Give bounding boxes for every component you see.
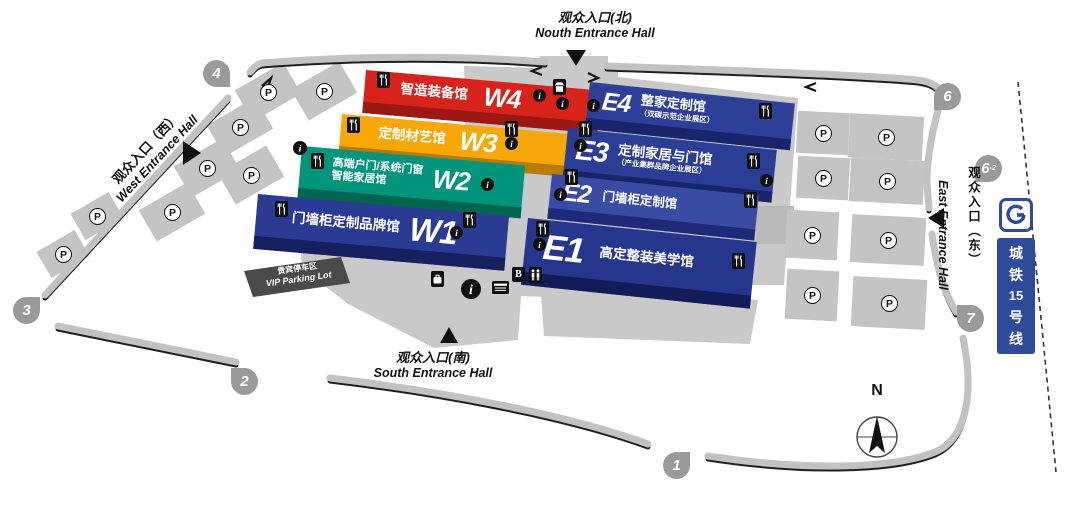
restaurant-icon: [565, 169, 578, 185]
kiosk-icon: [553, 79, 566, 95]
gate-7-label: 7: [966, 310, 974, 327]
info-icon: i: [556, 97, 569, 110]
south-entrance-en: South Entrance Hall: [338, 366, 528, 382]
restaurant-icon: [275, 201, 288, 217]
parking-badge: P: [815, 125, 832, 142]
info-icon: i: [533, 89, 546, 102]
info-icon: i: [461, 279, 481, 299]
gate-7-marker: 7: [957, 305, 984, 332]
parking-badge: P: [260, 84, 277, 101]
restaurant-icon: [759, 103, 772, 119]
north-entrance-en: Nouth Entrance Hall: [500, 26, 690, 42]
restaurant-icon: [536, 221, 549, 237]
hall-w4-name: 智造装备馆: [400, 81, 469, 102]
info-icon: i: [481, 178, 494, 191]
gate-1-marker: 1: [663, 452, 690, 479]
metro-logo: [999, 198, 1033, 232]
gate-3-marker: 3: [13, 297, 40, 324]
gate-6-2-sup: -2: [990, 165, 996, 172]
parking-badge: P: [164, 204, 181, 221]
hall-w2-letter: W2: [432, 166, 471, 195]
parking-badge: P: [881, 295, 898, 312]
gate-6-label: 6: [943, 88, 951, 105]
parking-badge: P: [55, 246, 72, 263]
parking-badge: P: [878, 129, 895, 146]
info-icon: i: [505, 137, 518, 150]
gate-2-label: 2: [240, 373, 248, 390]
parking-badge: P: [232, 119, 249, 136]
restaurant-icon: [579, 121, 592, 137]
north-entrance-zh: 观众入口(北): [500, 10, 690, 26]
parking-badge: P: [804, 227, 821, 244]
parking-badge: P: [199, 160, 216, 177]
hall-e2-name: 门墙柜定制馆: [602, 189, 678, 211]
info-icon: i: [450, 226, 463, 239]
info-icon: i: [554, 188, 567, 201]
compass-icon: [857, 416, 897, 457]
restaurant-icon: [505, 121, 518, 137]
metro-banner-char: 铁: [1009, 268, 1023, 282]
parking-badge: P: [880, 232, 897, 249]
east-entrance-zh: 观众入口（东）: [964, 166, 983, 268]
parking-badge: P: [879, 173, 896, 190]
info-icon: i: [533, 238, 546, 251]
restaurant-icon: [311, 153, 324, 169]
compass-north-label: N: [866, 382, 888, 400]
exhibition-map: 智造装备馆 W4 定制材艺馆 W3 高端户门/系统门窗 智能家居馆 W2 门墙柜…: [0, 0, 1080, 516]
hall-w4-letter: W4: [483, 83, 522, 112]
restroom-icon: [529, 267, 542, 283]
restaurant-icon: [732, 253, 745, 269]
hall-w3-name: 定制材艺馆: [378, 126, 447, 147]
south-entrance-zh: 观众入口(南): [338, 350, 528, 366]
metro-banner-char: 线: [1009, 332, 1023, 346]
restaurant-icon: [463, 212, 476, 228]
east-entrance-en: East Entrance Hall: [936, 180, 950, 290]
parking-badge: P: [815, 170, 832, 187]
gate-1-label: 1: [672, 457, 680, 474]
parking-badge: P: [804, 287, 821, 304]
metro-line-banner: 城 铁 15 号 线: [997, 238, 1035, 354]
svg-text:i: i: [469, 283, 473, 298]
gate-6-marker: 6: [934, 83, 961, 110]
gate-3-label: 3: [22, 302, 30, 319]
hall-w3-letter: W3: [459, 127, 498, 156]
north-entrance-label: 观众入口(北) Nouth Entrance Hall: [500, 10, 690, 42]
gate-4-label: 4: [212, 65, 220, 82]
parking-badge: P: [243, 167, 260, 184]
restaurant-icon: [377, 72, 390, 88]
restaurant-icon: [747, 153, 760, 169]
restaurant-icon: [744, 192, 757, 208]
restaurant-icon: [347, 117, 360, 133]
atm-icon-label: B: [515, 269, 522, 280]
info-icon: i: [587, 99, 600, 112]
luggage-deposit-icon: [431, 271, 444, 287]
hall-w1-name: 门墙柜定制品牌馆: [291, 210, 400, 235]
svg-text:i: i: [299, 144, 302, 155]
south-entrance-label: 观众入口(南) South Entrance Hall: [338, 350, 528, 382]
hall-e4-letter: E4: [601, 89, 632, 117]
metro-banner-char: 15: [1009, 289, 1023, 302]
info-icon: i: [574, 139, 587, 152]
hall-e1-name: 高定整装美学馆: [599, 245, 695, 270]
metro-banner-char: 城: [1009, 246, 1023, 260]
info-icon: i: [293, 141, 307, 155]
atm-icon: B: [512, 267, 525, 282]
parking-badge: P: [316, 83, 333, 100]
info-icon: i: [760, 174, 773, 187]
service-counter-icon: [492, 281, 509, 294]
metro-banner-char: 号: [1009, 310, 1023, 324]
gate-2-marker: 2: [231, 368, 258, 395]
